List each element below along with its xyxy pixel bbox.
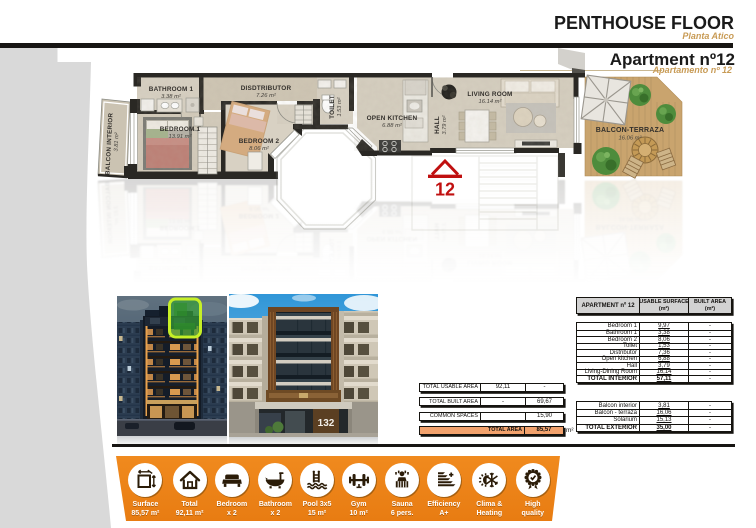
svg-text:BALCON-TERRAZA: BALCON-TERRAZA [596, 127, 665, 134]
svg-text:HALL: HALL [434, 116, 441, 134]
svg-text:3.81 m²: 3.81 m² [114, 131, 121, 151]
svg-text:LIVING ROOM: LIVING ROOM [467, 91, 512, 98]
svg-text:1.53 m²: 1.53 m² [337, 96, 343, 116]
svg-text:16.06 m²: 16.06 m² [619, 136, 643, 142]
svg-text:8.06 m²: 8.06 m² [249, 146, 270, 152]
svg-text:3.79 m²: 3.79 m² [442, 114, 448, 134]
svg-text:BATHROOM 1: BATHROOM 1 [149, 86, 194, 93]
svg-text:12: 12 [435, 180, 455, 200]
svg-text:DISDTRIBUTOR: DISDTRIBUTOR [241, 85, 292, 92]
svg-text:BEDROOM 1: BEDROOM 1 [160, 126, 201, 133]
svg-text:3.38 m²: 3.38 m² [161, 94, 182, 100]
svg-text:13.91 m²: 13.91 m² [169, 134, 193, 140]
svg-text:BEDROOM 2: BEDROOM 2 [239, 138, 280, 145]
svg-text:6.88 m²: 6.88 m² [382, 123, 403, 129]
svg-text:TOILET: TOILET [329, 95, 336, 119]
svg-text:OPEN KITCHEN: OPEN KITCHEN [367, 115, 418, 122]
svg-text:16.14 m²: 16.14 m² [479, 99, 503, 105]
svg-text:7.26 m²: 7.26 m² [256, 93, 277, 99]
svg-text:132: 132 [318, 418, 335, 429]
